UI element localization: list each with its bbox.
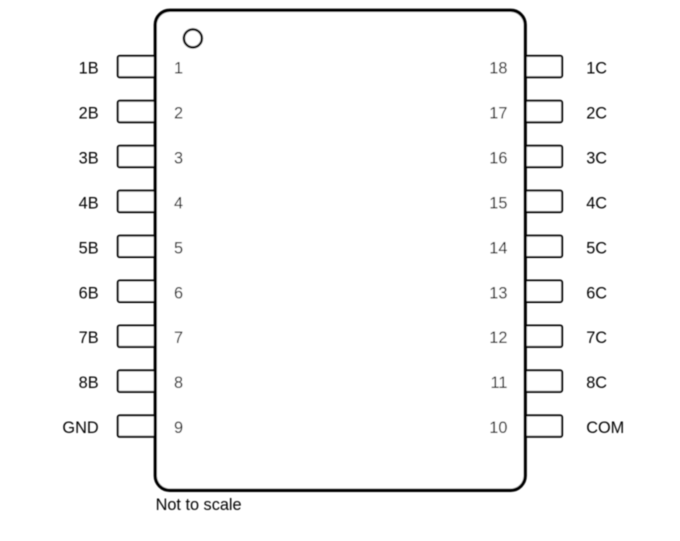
svg-text:13: 13 [489, 284, 507, 302]
svg-text:9: 9 [174, 419, 183, 437]
svg-text:GND: GND [62, 419, 98, 437]
svg-text:5C: 5C [586, 239, 607, 257]
svg-text:4C: 4C [586, 194, 607, 212]
svg-text:7: 7 [174, 329, 183, 347]
svg-text:2C: 2C [586, 104, 607, 122]
svg-text:10: 10 [489, 419, 507, 437]
svg-text:6C: 6C [586, 284, 607, 302]
svg-text:Not to scale: Not to scale [156, 496, 242, 514]
svg-text:5: 5 [174, 239, 183, 257]
svg-text:16: 16 [489, 149, 507, 167]
svg-text:3C: 3C [586, 149, 607, 167]
svg-text:1: 1 [174, 60, 183, 78]
svg-text:2: 2 [174, 104, 183, 122]
svg-text:4B: 4B [79, 194, 99, 212]
svg-text:6B: 6B [79, 284, 99, 302]
svg-text:12: 12 [489, 329, 507, 347]
svg-text:5B: 5B [79, 239, 99, 257]
svg-text:COM: COM [586, 419, 624, 437]
svg-text:6: 6 [174, 284, 183, 302]
svg-text:8C: 8C [586, 374, 607, 392]
svg-text:3: 3 [174, 149, 183, 167]
svg-text:14: 14 [489, 239, 507, 257]
svg-text:3B: 3B [79, 149, 99, 167]
svg-text:8B: 8B [79, 374, 99, 392]
svg-text:8: 8 [174, 374, 183, 392]
svg-text:4: 4 [174, 194, 183, 212]
svg-text:17: 17 [489, 104, 507, 122]
svg-text:7C: 7C [586, 329, 607, 347]
svg-text:11: 11 [490, 374, 507, 392]
svg-text:18: 18 [489, 60, 507, 78]
svg-text:2B: 2B [79, 104, 99, 122]
svg-text:15: 15 [489, 194, 507, 212]
svg-text:1B: 1B [79, 60, 99, 78]
svg-text:7B: 7B [79, 329, 99, 347]
svg-text:1C: 1C [586, 60, 607, 78]
